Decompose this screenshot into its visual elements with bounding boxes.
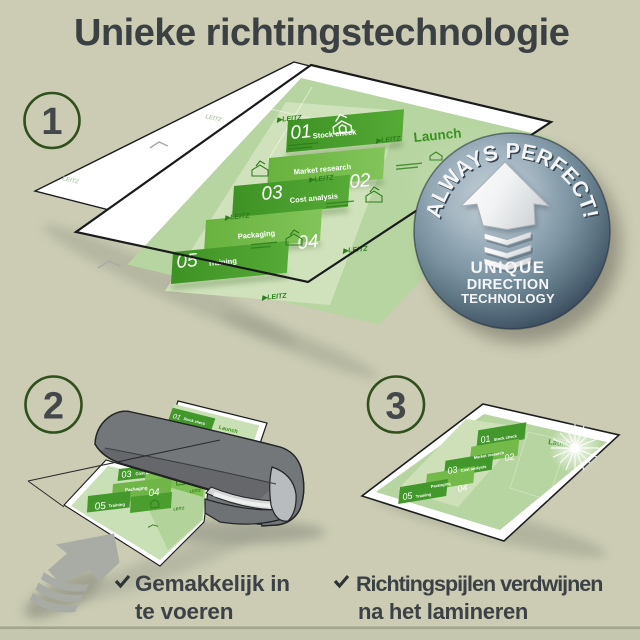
svg-text:2: 2 — [43, 386, 64, 428]
svg-text:UNIQUE: UNIQUE — [470, 258, 545, 277]
svg-text:03: 03 — [447, 464, 459, 476]
svg-text:02: 02 — [504, 451, 516, 463]
svg-text:na het lamineren: na het lamineren — [358, 599, 528, 624]
svg-text:03: 03 — [121, 469, 132, 480]
svg-text:Gemakkelijk in: Gemakkelijk in — [135, 571, 290, 596]
svg-text:01: 01 — [289, 121, 312, 144]
svg-text:TECHNOLOGY: TECHNOLOGY — [461, 291, 555, 306]
svg-text:3: 3 — [385, 386, 406, 428]
svg-text:04: 04 — [148, 487, 161, 499]
svg-text:01: 01 — [480, 433, 492, 445]
svg-text:Unieke richtingstechnologie: Unieke richtingstechnologie — [74, 12, 569, 54]
svg-text:04: 04 — [457, 482, 469, 494]
svg-text:1: 1 — [41, 101, 62, 143]
svg-text:02: 02 — [348, 170, 371, 193]
svg-text:05: 05 — [94, 501, 107, 513]
svg-text:03: 03 — [260, 182, 283, 205]
svg-text:te voeren: te voeren — [135, 599, 233, 624]
svg-text:Richtingspijlen verdwijnen: Richtingspijlen verdwijnen — [356, 572, 602, 596]
svg-text:04: 04 — [296, 231, 319, 254]
